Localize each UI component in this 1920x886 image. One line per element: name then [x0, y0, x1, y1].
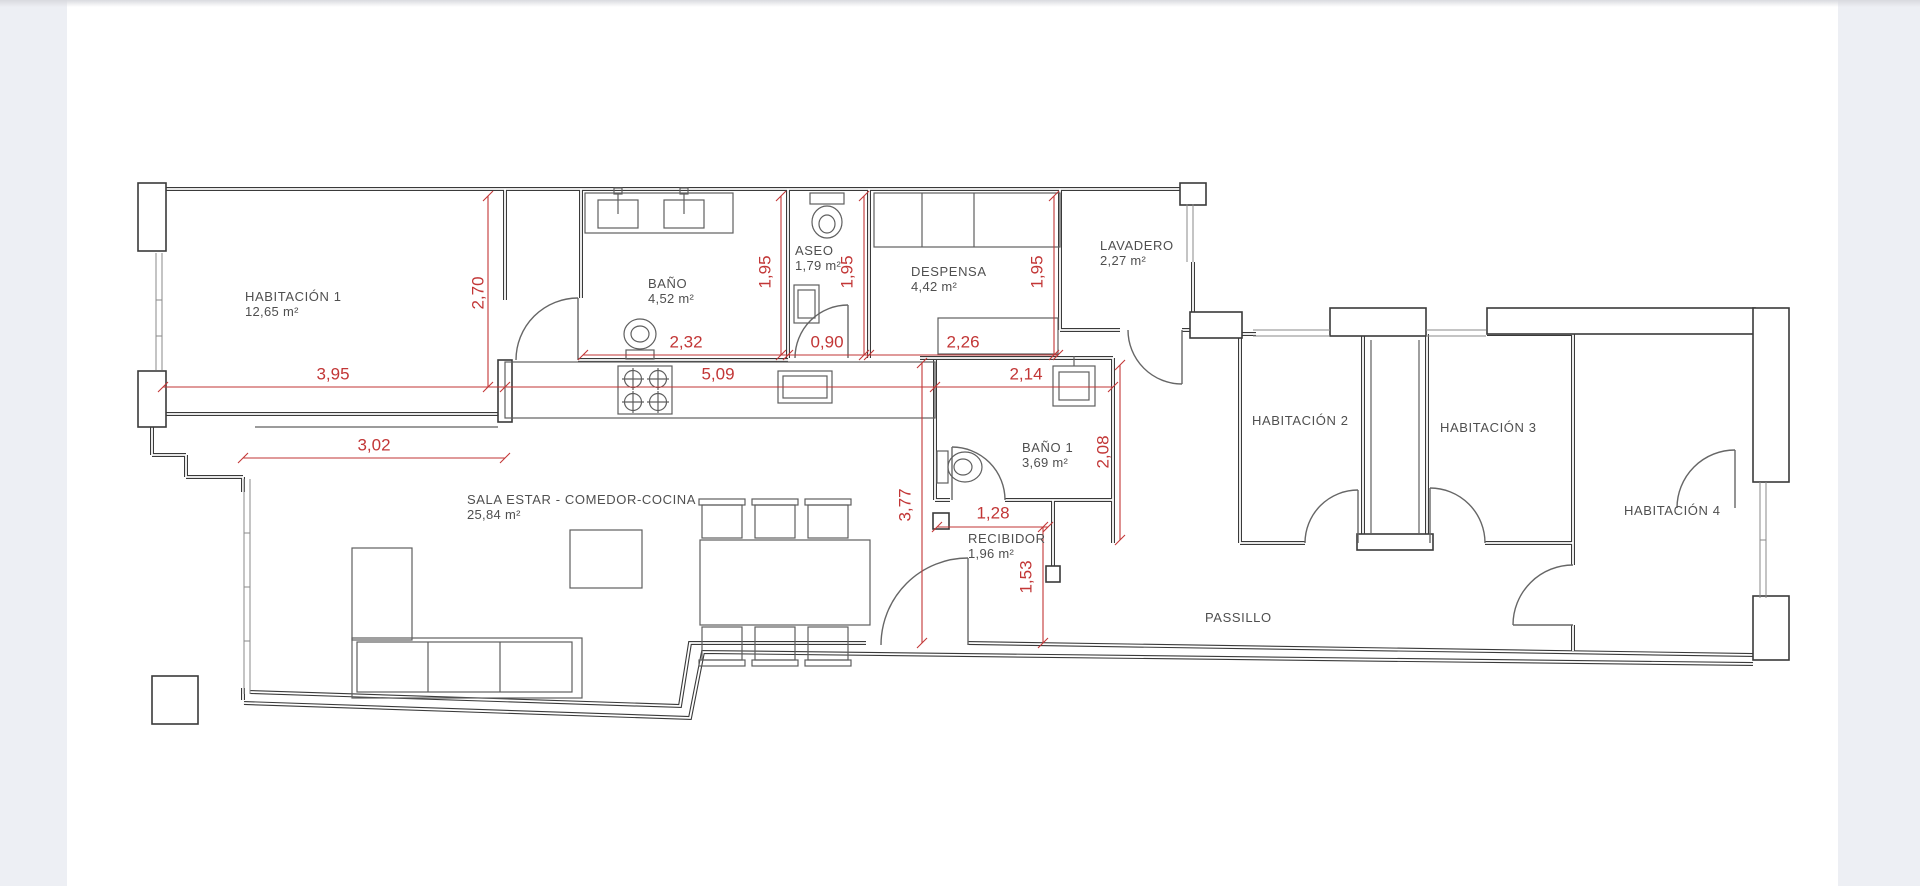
wall-pier	[138, 371, 166, 427]
window-bedroom1-left	[156, 253, 162, 370]
side-table	[570, 530, 642, 588]
dimension-label: 1,28	[976, 505, 1009, 522]
room-name: BAÑO	[648, 276, 694, 291]
bathroom1-door	[952, 447, 1005, 500]
room-label-bedroom4: HABITACIÓN 4	[1624, 503, 1721, 518]
bathroom1-washer	[1053, 356, 1095, 406]
bathroom1-toilet	[937, 451, 982, 483]
bathroom-toilet	[624, 319, 656, 359]
toilet-room-sink	[794, 285, 819, 323]
dining-chairs	[699, 499, 851, 666]
dimension-label: 2,32	[669, 334, 702, 351]
bathroom-door	[516, 298, 578, 360]
dining-table	[700, 540, 870, 625]
wall-pier	[1330, 308, 1426, 336]
room-label-living-kitchen: SALA ESTAR - COMEDOR-COCINA 25,84 m²	[467, 492, 696, 522]
wall-pier	[1487, 308, 1755, 334]
room-label-toilet-room: ASEO 1,79 m²	[795, 243, 841, 273]
room-name: HABITACIÓN 4	[1624, 503, 1721, 518]
room-name: SALA ESTAR - COMEDOR-COCINA	[467, 492, 696, 507]
room-name: BAÑO 1	[1022, 440, 1073, 455]
wall-pier	[1753, 308, 1789, 482]
room-area: 2,27 m²	[1100, 253, 1174, 268]
room-name: RECIBIDOR	[968, 531, 1046, 546]
wall-pier	[1190, 312, 1242, 338]
bedroom2-door	[1305, 490, 1358, 543]
room-label-laundry: LAVADERO 2,27 m²	[1100, 238, 1174, 268]
room-label-bedroom2: HABITACIÓN 2	[1252, 413, 1349, 428]
room-area: 1,96 m²	[968, 546, 1046, 561]
dimension-label: 0,90	[810, 334, 843, 351]
dimension-label: 2,08	[1095, 435, 1112, 468]
dimension-label: 3,77	[897, 488, 914, 521]
room-area: 4,52 m²	[648, 291, 694, 306]
room-area: 12,65 m²	[245, 304, 342, 319]
wall-pier	[1357, 534, 1433, 550]
wall-pier	[1180, 183, 1206, 205]
dimension-label: 5,09	[701, 366, 734, 383]
dimension-label: 2,14	[1009, 366, 1042, 383]
wall-pier	[1753, 596, 1789, 660]
bedroom4-door	[1513, 565, 1573, 625]
bedroom3-door	[1430, 488, 1485, 543]
room-label-hallway: PASSILLO	[1205, 610, 1272, 625]
window-bedroom2-top	[1253, 330, 1330, 336]
room-label-bedroom1: HABITACIÓN 1 12,65 m²	[245, 289, 342, 319]
dimension-label: 2,70	[470, 276, 487, 309]
room-area: 3,69 m²	[1022, 455, 1073, 470]
sofa	[352, 548, 582, 698]
room-name: HABITACIÓN 3	[1440, 420, 1537, 435]
room-name: HABITACIÓN 2	[1252, 413, 1349, 428]
laundry-door	[1128, 330, 1182, 384]
floorplan-drawing	[0, 0, 1920, 886]
room-name: ASEO	[795, 243, 841, 258]
bathroom-vanity	[585, 188, 733, 233]
hallway-end-door	[1677, 450, 1735, 508]
room-area: 4,42 m²	[911, 279, 987, 294]
room-name: PASSILLO	[1205, 610, 1272, 625]
room-label-pantry: DESPENSA 4,42 m²	[911, 264, 987, 294]
dimension-label: 2,26	[946, 334, 979, 351]
wall-pier	[1046, 566, 1060, 582]
window-living-left	[244, 479, 250, 694]
room-name: DESPENSA	[911, 264, 987, 279]
room-label-entry-hall: RECIBIDOR 1,96 m²	[968, 531, 1046, 561]
room-area: 1,79 m²	[795, 258, 841, 273]
window-laundry-right	[1187, 204, 1193, 262]
entry-door	[881, 558, 968, 645]
toilet-room-toilet	[810, 193, 844, 238]
dimension-label: 3,02	[357, 437, 390, 454]
room-label-bathroom: BAÑO 4,52 m²	[648, 276, 694, 306]
room-area: 25,84 m²	[467, 507, 696, 522]
room-label-bedroom3: HABITACIÓN 3	[1440, 420, 1537, 435]
room-name: HABITACIÓN 1	[245, 289, 342, 304]
stove	[618, 366, 672, 414]
dimension-label: 1,95	[757, 255, 774, 288]
chimney-block	[152, 676, 198, 724]
room-name: LAVADERO	[1100, 238, 1174, 253]
dimension-label: 1,53	[1018, 560, 1035, 593]
window-bedroom3-top	[1426, 330, 1486, 336]
dimension-label: 1,95	[839, 255, 856, 288]
room-label-bathroom1: BAÑO 1 3,69 m²	[1022, 440, 1073, 470]
dimension-label: 3,95	[316, 366, 349, 383]
window-bedroom4-right	[1760, 482, 1766, 598]
dimension-label: 1,95	[1029, 255, 1046, 288]
wall-pier	[138, 183, 166, 251]
floorplan-page: HABITACIÓN 1 12,65 m² BAÑO 4,52 m² ASEO …	[0, 0, 1920, 886]
